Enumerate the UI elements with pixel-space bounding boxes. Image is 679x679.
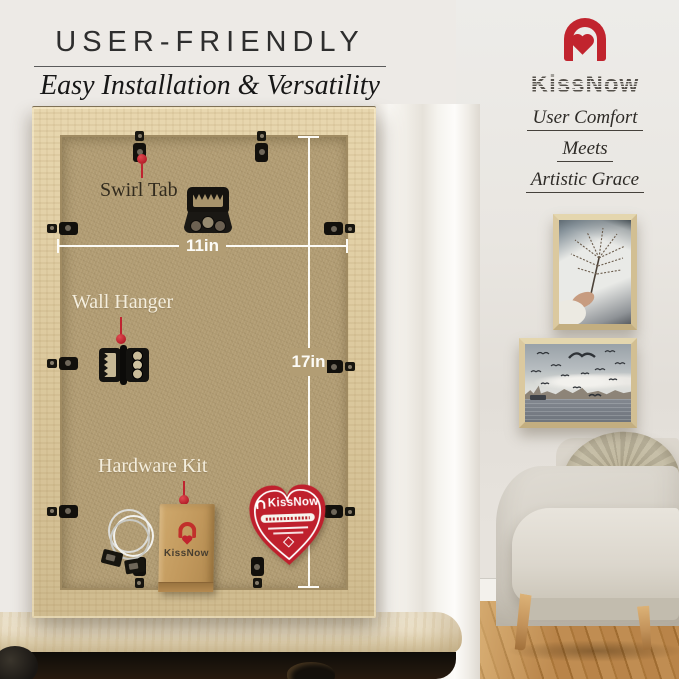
hardware-kit-label: Hardware Kit [98,455,207,478]
photo-seaside-city [525,344,631,422]
swirl-tab-icon [47,222,78,235]
callout-stem [141,164,143,178]
brand-block: KissNow User Comfort Meets Artistic Grac… [500,18,670,201]
seagulls-graphic [525,344,631,422]
fern-and-hand-graphic [559,220,631,324]
callout-stem [120,317,122,335]
photo-dried-flowers [559,220,631,324]
tagline-line-2: Meets [557,139,612,162]
picture-frame-back: Swirl Tab 11in 17in Wall Hanger Hardware… [32,106,376,618]
sawtooth-hanger-icon [182,185,234,239]
kissnow-arch-logo-icon [563,18,607,64]
badge-logotype: KissNow [268,496,319,510]
kraft-hardware-bag: KissNow [158,504,215,592]
sideboard-top [0,612,462,654]
badge-fine-print [273,531,303,534]
shelf-object [287,662,335,679]
width-dimension-label: 11in [179,236,226,256]
kissnow-heart-badge: KissNow [242,475,333,574]
tagline-line-1: User Comfort [527,108,642,131]
swirl-tab-icon [47,505,78,518]
heart-icon [182,536,190,544]
badge-fine-print [268,526,308,529]
bag-logotype: KissNow [159,548,214,559]
wall-hanger-label: Wall Hanger [72,291,173,314]
divider-line [34,66,386,67]
wall-frame-portrait [553,214,637,330]
swirl-tab-icon [255,131,268,162]
sofa-shadow [506,640,679,662]
sofa-seat [512,508,679,604]
header: USER-FRIENDLY Easy Installation & Versat… [0,0,420,102]
product-infographic: USER-FRIENDLY Easy Installation & Versat… [0,0,679,679]
swirl-tab-icon [47,357,78,370]
badge-banner [261,513,315,523]
arch-icon [256,499,265,508]
brand-tagline: User Comfort Meets Artistic Grace [500,108,670,193]
page-subtitle: Easy Installation & Versatility [0,70,420,102]
sideboard-shelf [0,652,456,679]
swirl-tab-label: Swirl Tab [100,179,178,202]
wood-sideboard [0,612,462,679]
wall-hanger-icon [98,344,150,386]
callout-dot [116,334,126,344]
white-curtain [374,104,480,679]
wall-frame-landscape [519,338,637,428]
brand-logotype: KissNow [531,71,639,99]
badge-content: KissNow [242,475,333,574]
swirl-tab-icon [324,360,355,373]
sofa-base [520,598,679,620]
tagline-line-3: Artistic Grace [526,170,644,193]
badge-ornament-icon [283,536,294,547]
page-title: USER-FRIENDLY [0,26,420,59]
callout-dot [137,154,147,164]
swirl-tab-icon [324,222,355,235]
height-dimension-label: 17in [290,348,326,376]
